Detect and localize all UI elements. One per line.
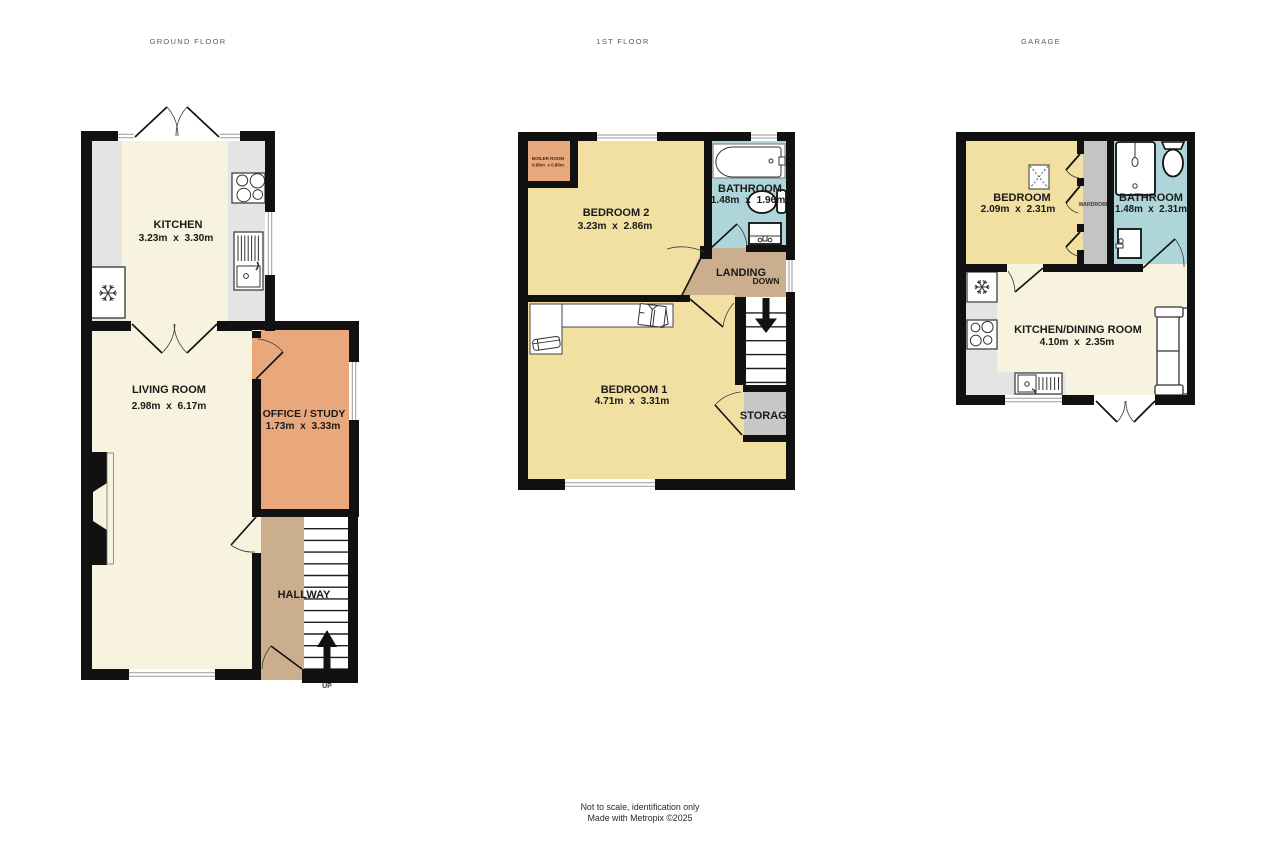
svg-text:BATHROOM: BATHROOM — [718, 183, 782, 195]
svg-text:3.23m x 2.86m: 3.23m x 2.86m — [578, 221, 653, 232]
svg-text:Made with Metropix ©2025: Made with Metropix ©2025 — [588, 813, 693, 823]
svg-text:UP: UP — [322, 683, 332, 690]
svg-text:GROUND FLOOR: GROUND FLOOR — [150, 37, 227, 46]
svg-text:3.23m x 3.30m: 3.23m x 3.30m — [139, 233, 214, 244]
svg-text:1.48m x 2.31m: 1.48m x 2.31m — [1115, 204, 1187, 215]
svg-text:2.09m x 2.31m: 2.09m x 2.31m — [981, 204, 1056, 215]
svg-text:KITCHEN/DINING ROOM: KITCHEN/DINING ROOM — [1014, 324, 1142, 336]
svg-text:WARDROBE: WARDROBE — [1079, 202, 1110, 208]
svg-text:OFFICE / STUDY: OFFICE / STUDY — [263, 408, 346, 420]
svg-text:1.48m x 1.96m: 1.48m x 1.96m — [711, 195, 786, 206]
svg-text:2.98m x 6.17m: 2.98m x 6.17m — [132, 401, 207, 412]
svg-text:KITCHEN: KITCHEN — [154, 219, 203, 231]
svg-text:4.10m x 2.35m: 4.10m x 2.35m — [1040, 337, 1115, 348]
svg-text:0.85m x 0.85m: 0.85m x 0.85m — [532, 163, 564, 168]
svg-text:BEDROOM 2: BEDROOM 2 — [583, 207, 650, 219]
svg-text:1.73m x 3.33m: 1.73m x 3.33m — [266, 421, 341, 432]
svg-text:STORAGE: STORAGE — [740, 410, 794, 422]
svg-text:LIVING ROOM: LIVING ROOM — [132, 384, 206, 396]
svg-text:4.71m x 3.31m: 4.71m x 3.31m — [595, 396, 670, 407]
svg-text:HALLWAY: HALLWAY — [278, 589, 331, 601]
svg-text:BOILER ROOM: BOILER ROOM — [532, 156, 565, 161]
svg-text:BEDROOM 1: BEDROOM 1 — [601, 384, 668, 396]
svg-text:DOWN: DOWN — [753, 276, 780, 286]
svg-text:BATHROOM: BATHROOM — [1119, 192, 1183, 204]
svg-text:1ST FLOOR: 1ST FLOOR — [596, 37, 649, 46]
svg-text:Not to scale, identification o: Not to scale, identification only — [581, 802, 700, 812]
svg-text:GARAGE: GARAGE — [1021, 37, 1061, 46]
svg-text:BEDROOM: BEDROOM — [993, 192, 1050, 204]
